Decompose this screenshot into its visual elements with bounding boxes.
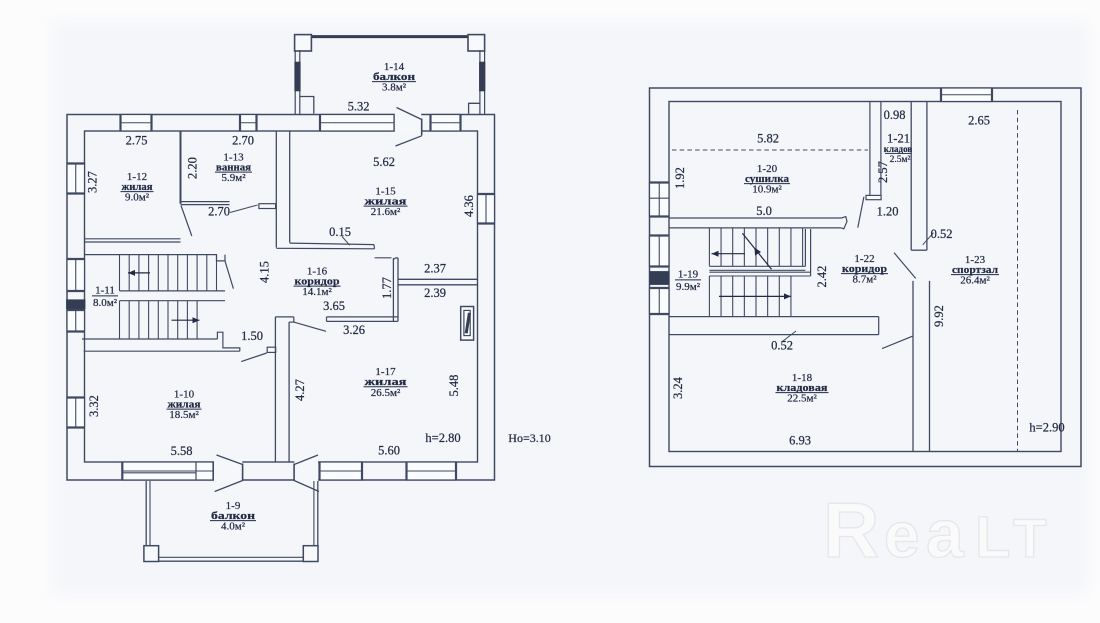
svg-text:0.52: 0.52 [931,227,953,241]
svg-text:5.0: 5.0 [756,204,772,218]
svg-text:26.5м²: 26.5м² [371,387,401,399]
svg-text:26.4м²: 26.4м² [960,275,990,287]
svg-text:3.8м²: 3.8м² [382,82,407,94]
svg-text:R: R [823,486,879,574]
svg-text:6.93: 6.93 [789,434,811,448]
svg-text:2.70: 2.70 [232,134,254,148]
svg-text:8.0м²: 8.0м² [93,297,118,309]
svg-text:Но=3.10: Но=3.10 [508,431,550,445]
svg-text:5.9м²: 5.9м² [221,172,246,184]
svg-text:5.58: 5.58 [171,444,193,458]
svg-text:2.57: 2.57 [876,161,890,183]
svg-text:0.98: 0.98 [884,108,906,122]
svg-text:8.7м²: 8.7м² [852,274,877,286]
svg-text:T: T [1013,507,1047,569]
svg-text:9.0м²: 9.0м² [125,192,150,204]
svg-text:5.32: 5.32 [348,100,370,114]
svg-text:1.92: 1.92 [673,167,687,189]
svg-text:кладов: кладов [884,144,913,154]
svg-text:h=2.90: h=2.90 [1029,421,1064,435]
svg-text:3.65: 3.65 [323,299,345,313]
svg-text:1.20: 1.20 [877,205,899,219]
svg-text:0.15: 0.15 [329,225,351,239]
svg-text:0.52: 0.52 [771,339,793,353]
svg-text:2.37: 2.37 [424,262,446,276]
svg-text:1.77: 1.77 [380,277,394,299]
svg-text:22.5м²: 22.5м² [787,393,817,405]
svg-text:2.42: 2.42 [815,266,829,288]
svg-text:9.9м²: 9.9м² [676,281,701,293]
svg-text:e: e [884,499,920,571]
svg-text:a: a [926,496,965,572]
svg-text:21.6м²: 21.6м² [371,206,401,218]
svg-text:9.92: 9.92 [932,305,946,327]
svg-text:5.82: 5.82 [757,132,779,146]
svg-text:4.36: 4.36 [462,195,476,217]
svg-text:3.32: 3.32 [87,395,101,417]
svg-text:2.20: 2.20 [186,157,200,179]
svg-text:3.26: 3.26 [343,323,365,337]
svg-text:1-19: 1-19 [678,269,699,281]
svg-text:h=2.80: h=2.80 [425,431,460,445]
svg-text:1.50: 1.50 [241,329,263,343]
svg-text:5.62: 5.62 [373,155,395,169]
svg-text:3.27: 3.27 [86,171,100,193]
svg-text:L: L [975,505,1010,570]
svg-text:14.1м²: 14.1м² [302,286,332,298]
svg-text:4.27: 4.27 [293,379,307,401]
svg-text:10.9м²: 10.9м² [752,184,782,196]
svg-text:18.5м²: 18.5м² [169,409,199,421]
svg-text:2.39: 2.39 [424,286,446,300]
svg-text:1-11: 1-11 [95,285,115,297]
svg-text:2.70: 2.70 [208,204,230,218]
svg-text:5.60: 5.60 [378,443,400,457]
svg-text:2.5м²: 2.5м² [890,155,911,165]
svg-text:3.24: 3.24 [671,376,685,399]
svg-text:2.75: 2.75 [126,134,148,148]
svg-text:4.15: 4.15 [258,261,272,283]
svg-text:5.48: 5.48 [447,375,461,397]
svg-text:4.0м²: 4.0м² [221,521,246,533]
svg-text:2.65: 2.65 [968,114,990,128]
